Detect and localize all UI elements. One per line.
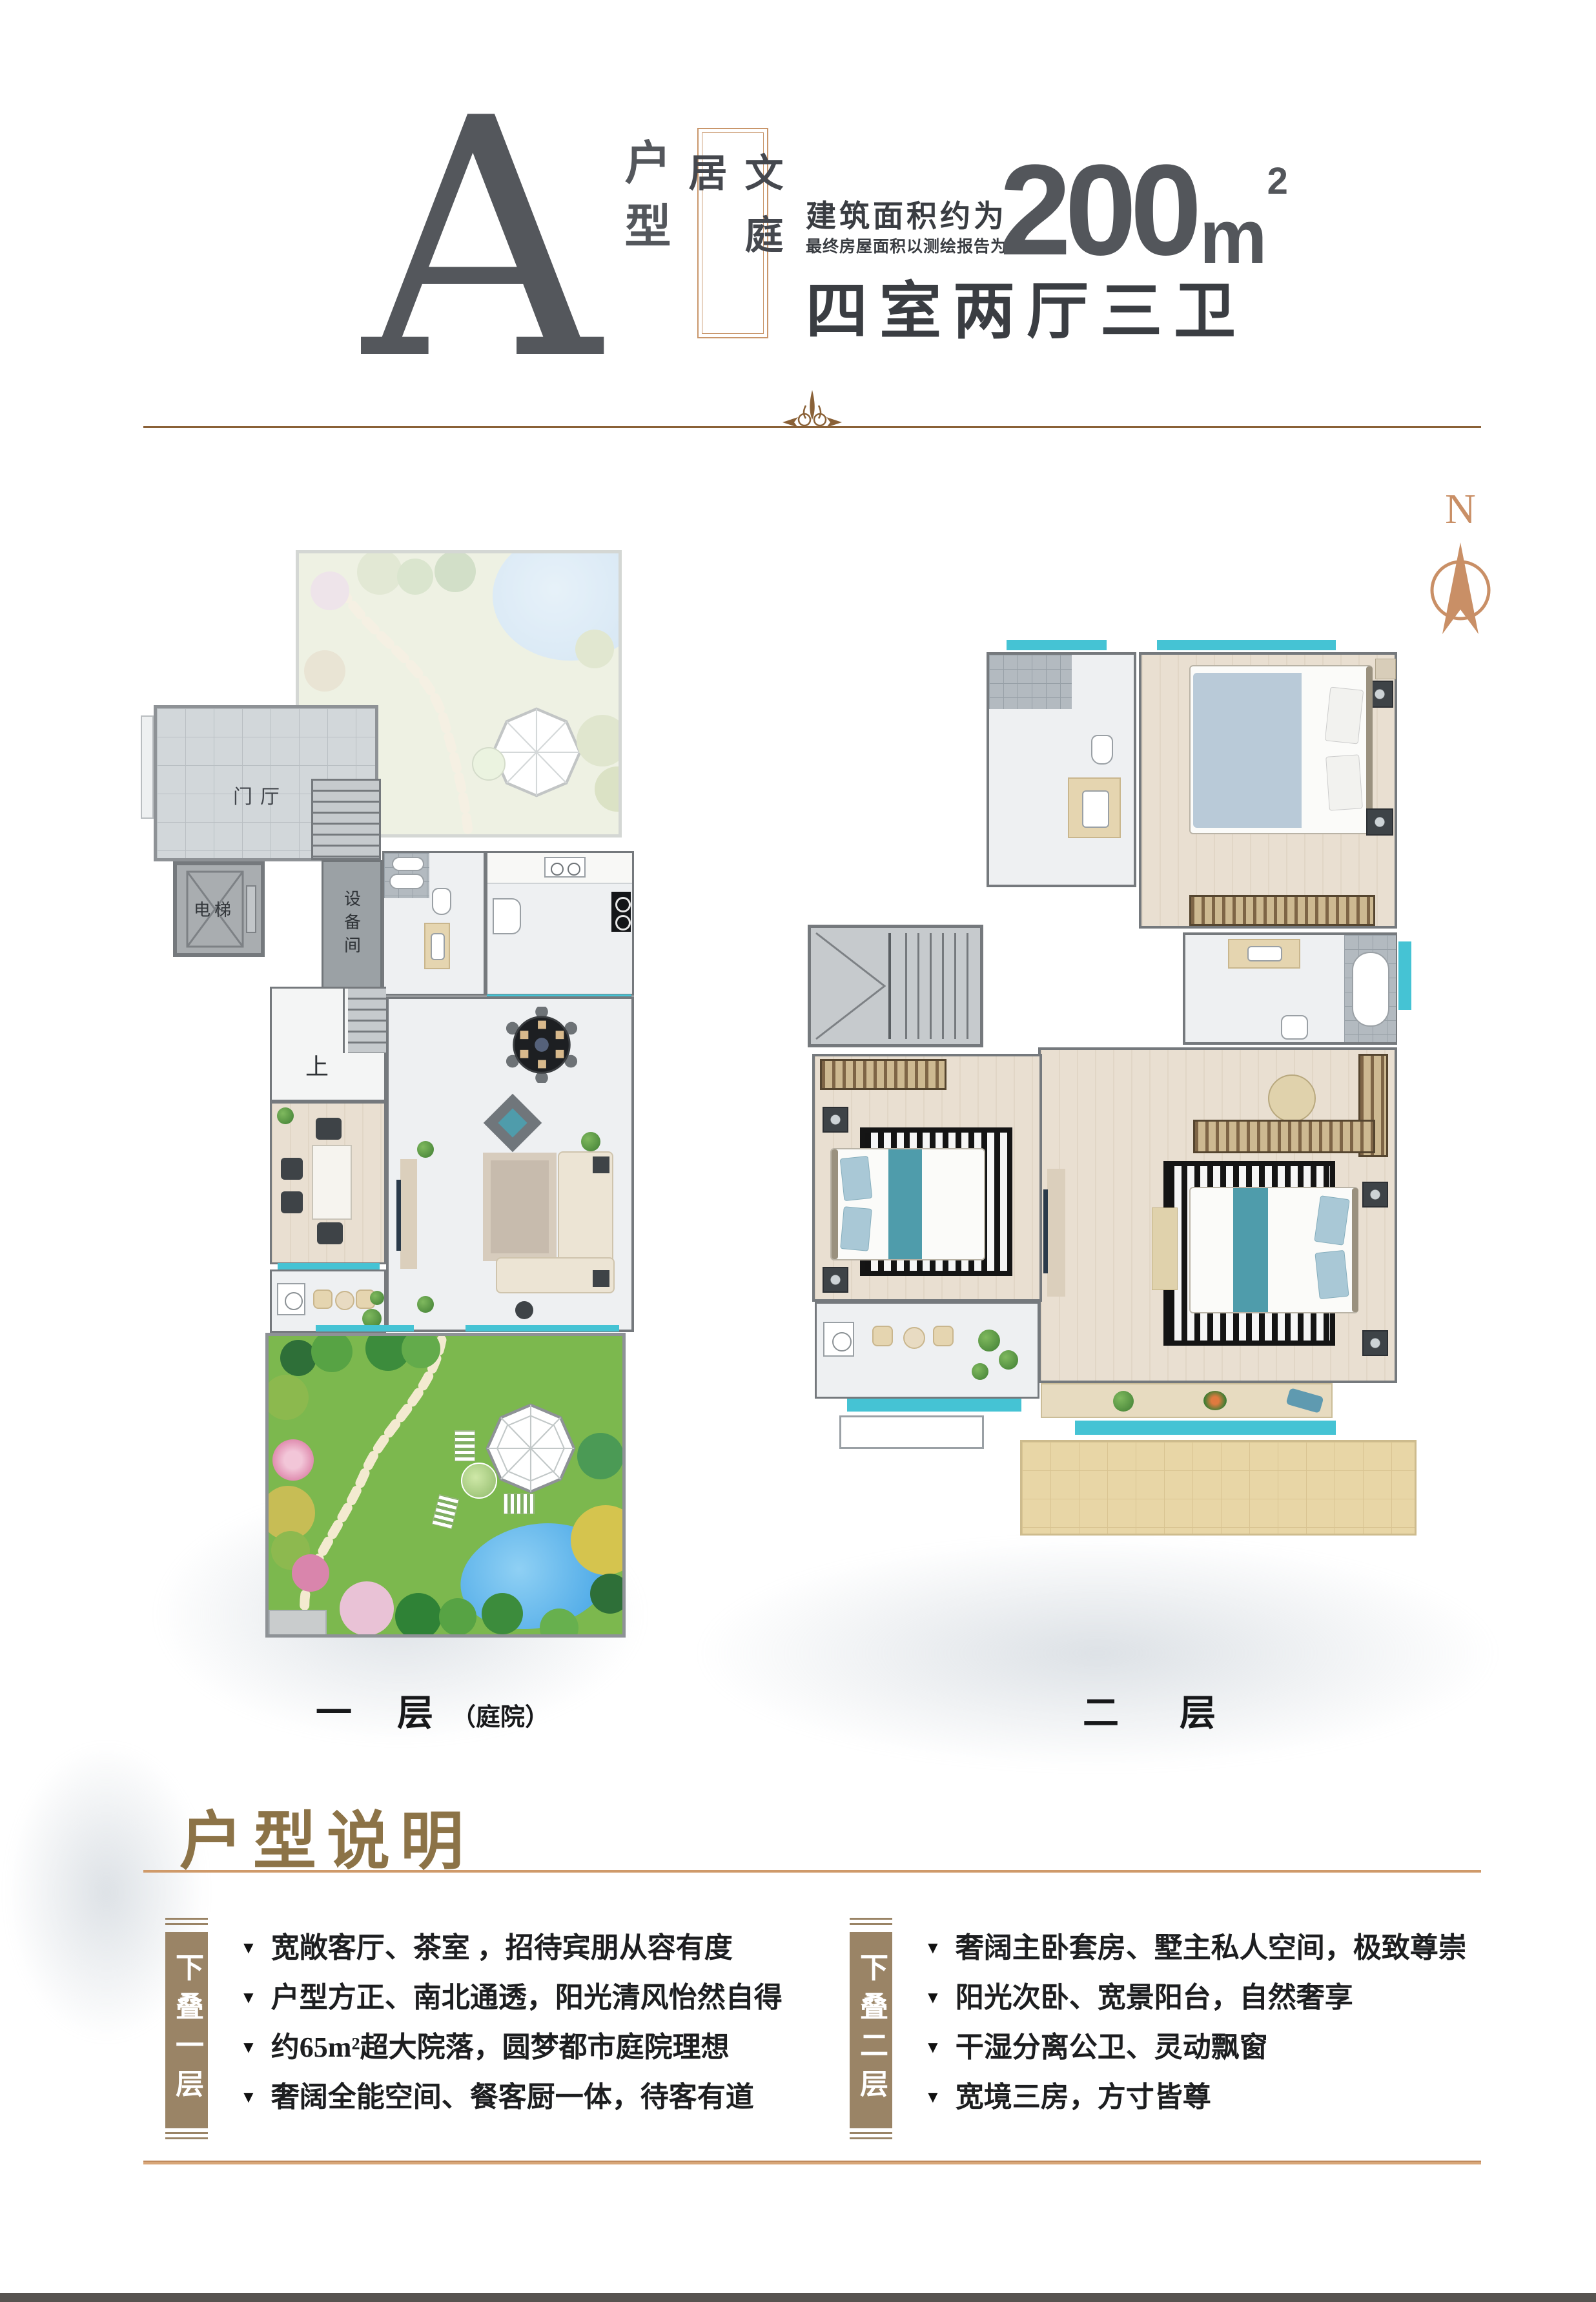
wardrobe — [1189, 895, 1375, 926]
bullet-icon: ▼ — [240, 1938, 257, 1957]
wardrobe — [820, 1059, 946, 1090]
nightstand — [1362, 1182, 1388, 1208]
blanket — [1193, 673, 1302, 828]
notes-title: 户型说明 — [179, 1790, 474, 1882]
floor2-caption: 二 层 — [1033, 1684, 1291, 1736]
tag-ornament-line — [850, 1918, 892, 1920]
note-text: 干湿分离公卫、灵动飘窗 — [956, 2031, 1268, 2063]
note-item: ▼约65m²超大院落，圆梦都市庭院理想 — [240, 2024, 730, 2065]
nightstand — [1366, 808, 1393, 836]
bed-runner — [888, 1149, 922, 1259]
cushion — [1285, 1388, 1324, 1413]
lotus-plant — [972, 1363, 988, 1380]
fan-chair — [1268, 1074, 1316, 1122]
tag-ornament-line — [165, 2137, 208, 2139]
brochure-page: A 户型 文庭居 建筑面积约为 最终房屋面积以测绘报告为准 200 m 2 四室… — [0, 0, 1596, 2302]
bottom-rule — [143, 2161, 1481, 2164]
ac-platform — [839, 1415, 984, 1449]
note-text: 宽境三房，方寸皆尊 — [956, 2081, 1211, 2113]
lotus-plant — [978, 1330, 1000, 1351]
note-text: 户型方正、南北通透，阳光清风怡然自得 — [271, 1982, 783, 2013]
note-item: ▼宽敞客厅、茶室 ，招待宾朋从容有度 — [240, 1924, 733, 1966]
roof-terrace — [1020, 1440, 1417, 1536]
tag-ornament-line — [850, 1923, 892, 1925]
bed-pillow — [840, 1156, 873, 1201]
bed-runner — [1233, 1188, 1268, 1312]
note-text: 阳光次卧、宽景阳台，自然奢享 — [956, 1982, 1353, 2013]
bed — [830, 1148, 985, 1260]
chair — [872, 1326, 893, 1346]
shower-tile — [989, 655, 1072, 709]
notes-underline — [143, 1870, 1481, 1873]
window-strip — [1075, 1421, 1336, 1435]
bed-pillow — [1314, 1195, 1350, 1246]
note-text: 奢阔主卧套房、墅主私人空间，极致尊崇 — [956, 1932, 1467, 1964]
side-table — [903, 1327, 925, 1349]
note-text: 约65m²超大院落，圆梦都市庭院理想 — [271, 2031, 730, 2063]
note-item: ▼干湿分离公卫、灵动飘窗 — [925, 2024, 1268, 2065]
stair-treads — [895, 933, 979, 1039]
floor2-stairwell — [808, 925, 983, 1047]
note-item: ▼户型方正、南北通透，阳光清风怡然自得 — [240, 1974, 783, 2015]
corner-shelf — [1375, 659, 1396, 679]
headboard — [1352, 1188, 1358, 1312]
floor1-tag: 下叠一层 — [165, 1932, 208, 2128]
south-bedroom — [1038, 1047, 1397, 1383]
bullet-icon: ▼ — [925, 2038, 941, 2057]
chair — [933, 1326, 954, 1346]
note-item: ▼宽境三房，方寸皆尊 — [925, 2073, 1211, 2115]
window-strip — [847, 1399, 1021, 1412]
bullet-icon: ▼ — [925, 1938, 941, 1957]
flower-pot — [1203, 1391, 1227, 1410]
bed-pillow — [840, 1206, 872, 1251]
tag-ornament-line — [165, 1923, 208, 1925]
tv — [1043, 1189, 1048, 1273]
note-item: ▼阳光次卧、宽景阳台，自然奢享 — [925, 1974, 1353, 2015]
vanity — [1228, 939, 1300, 969]
bed-pillow — [1315, 1250, 1349, 1299]
tub-surround — [1344, 935, 1396, 1042]
tv-console — [1047, 1169, 1065, 1297]
nightstand — [823, 1107, 848, 1133]
secondary-bedroom — [812, 1054, 1042, 1302]
note-item: ▼奢阔全能空间、餐客厨一体，待客有道 — [240, 2073, 754, 2115]
vanity — [1068, 777, 1121, 838]
note-text: 奢阔全能空间、餐客厨一体，待客有道 — [271, 2081, 754, 2113]
page-edge-bar — [0, 2293, 1596, 2302]
window-strip — [1157, 640, 1336, 650]
floor1-tag-label: 下叠一层 — [166, 1953, 207, 2108]
nightstand — [823, 1267, 848, 1293]
master-bedroom — [1139, 652, 1397, 929]
washer-door — [832, 1332, 852, 1351]
tag-ornament-line — [850, 2137, 892, 2139]
floor2-bathroom — [987, 652, 1136, 887]
toilet — [1091, 735, 1113, 765]
headboard — [832, 1149, 838, 1259]
toilet — [1281, 1015, 1308, 1040]
floor2-tag-label: 下叠二层 — [850, 1953, 892, 2108]
tag-ornament-line — [850, 2132, 892, 2134]
tag-ornament-line — [165, 2132, 208, 2134]
balcony — [1041, 1383, 1333, 1418]
bed-pillow — [1325, 687, 1364, 745]
note-text: 宽敞客厅、茶室 ，招待宾朋从容有度 — [271, 1932, 733, 1964]
window-strip — [1007, 640, 1107, 650]
bullet-icon: ▼ — [925, 2088, 941, 2106]
vanity-sink — [1247, 946, 1282, 961]
washer — [823, 1322, 854, 1357]
floor2-tag: 下叠二层 — [850, 1932, 892, 2128]
plant — [1113, 1391, 1134, 1412]
bullet-icon: ▼ — [240, 2088, 257, 2106]
vanity-sink — [1082, 790, 1109, 828]
note-item: ▼奢阔主卧套房、墅主私人空间，极致尊崇 — [925, 1924, 1467, 1966]
tag-ornament-line — [165, 1918, 208, 1920]
lotus-plant — [999, 1350, 1018, 1370]
bullet-icon: ▼ — [240, 2038, 257, 2057]
floor2-flex-terrace — [815, 1302, 1039, 1399]
bed — [1189, 1187, 1358, 1313]
ensuite-bathroom — [1183, 932, 1397, 1045]
bench — [1152, 1208, 1178, 1290]
stair-rail — [888, 933, 891, 1039]
bathtub — [1352, 952, 1389, 1027]
dresser — [1193, 1120, 1375, 1153]
stair-landing-lines — [815, 932, 886, 1040]
window-strip — [1398, 941, 1411, 1010]
nightstand — [1362, 1330, 1388, 1356]
bullet-icon: ▼ — [240, 1988, 257, 2007]
bullet-icon: ▼ — [925, 1988, 941, 2007]
bed-pillow — [1325, 754, 1363, 810]
master-bed — [1189, 665, 1373, 834]
